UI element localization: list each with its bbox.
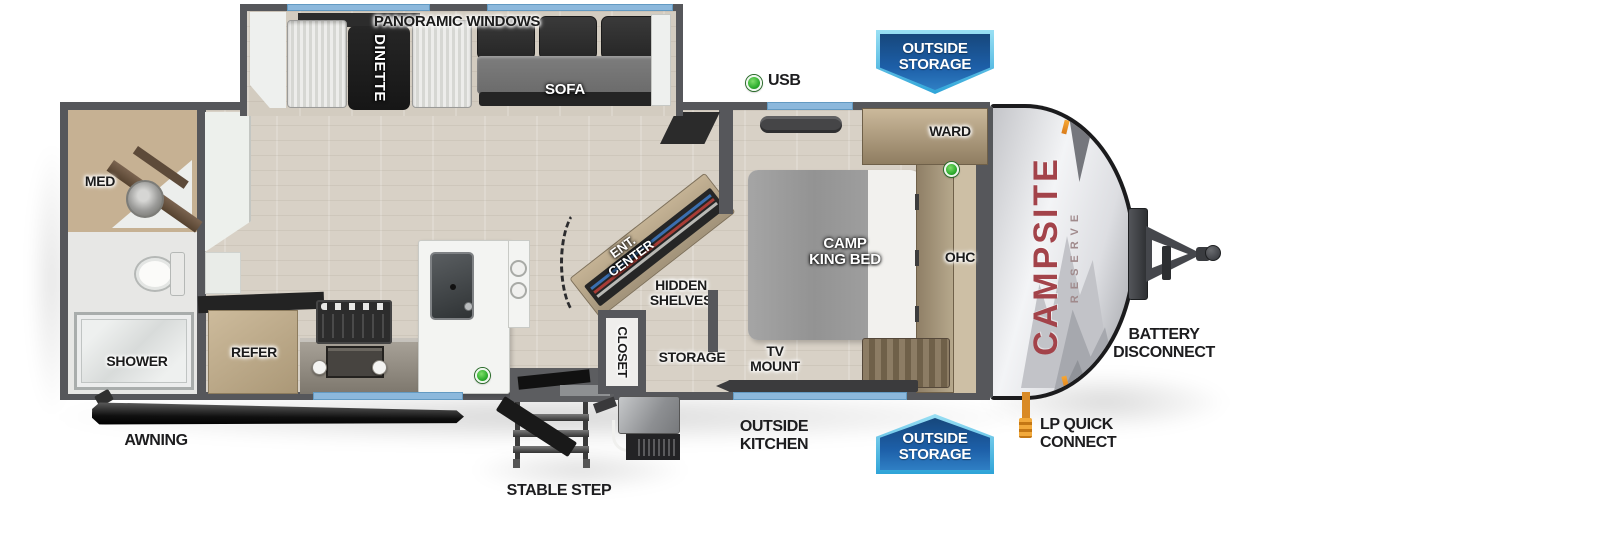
dinette-bench (412, 20, 472, 108)
sofa-label: SOFA (525, 82, 605, 98)
outside-storage-badge-top: OUTSIDE STORAGE (876, 30, 994, 94)
panoramic-windows-label: PANORAMIC WINDOWS (352, 14, 562, 30)
storage-label: STORAGE (650, 350, 734, 365)
refrigerator: REFER (208, 310, 298, 394)
bedroom-top-window (767, 102, 853, 110)
toilet-tank (170, 252, 185, 296)
shower-label: SHOWER (97, 354, 177, 369)
usb-legend-dot (746, 75, 762, 91)
stable-step-label: STABLE STEP (503, 482, 615, 500)
med-label: MED (74, 174, 126, 189)
hitch-coupler-knob (1205, 245, 1221, 261)
hinge (915, 306, 919, 322)
drawer-knob (372, 360, 387, 375)
ac-vent (760, 116, 842, 133)
brand-primary: CAMPSITE (1027, 156, 1066, 356)
tv-mount-bar (728, 380, 918, 392)
outside-kitchen-griddle (618, 396, 680, 434)
step-foot (583, 459, 590, 468)
hinge (915, 250, 919, 266)
trailer-main-body: MED SHOWER REFER (60, 102, 990, 400)
tv-mount-label: TV MOUNT (740, 344, 810, 374)
bedroom-bottom-window (733, 392, 907, 400)
step-foot (513, 459, 520, 468)
usb-indicator-dot (475, 368, 490, 383)
sofa-armrest (651, 14, 671, 106)
cooktop-grate (322, 314, 386, 338)
hinge (915, 194, 919, 210)
floorplan-canvas: MED SHOWER REFER (0, 0, 1600, 551)
dinette-bench (287, 20, 347, 108)
lp-quick-connect-label: LP QUICK CONNECT (1024, 416, 1134, 452)
ward-label: WARD (912, 124, 988, 139)
kitchen-bottom-window (313, 392, 463, 400)
dinette-label: DINETTE (371, 34, 387, 102)
lower-cabinet (205, 252, 241, 294)
stove-burner-bowl (510, 282, 527, 299)
battery-disconnect-label: BATTERY DISCONNECT (1108, 326, 1220, 362)
sink-drain (450, 284, 456, 290)
brand-logo: CAMPSITE RESERVE (990, 108, 1127, 400)
outside-kitchen-vents (638, 439, 678, 456)
step-tread (513, 446, 589, 453)
hitch-bumper (1128, 208, 1148, 300)
usb-legend-label: USB (768, 72, 814, 90)
camp-king-bed: CAMP KING BED (748, 170, 920, 340)
faucet (464, 302, 473, 311)
tongue-jack (1162, 246, 1171, 280)
shower-pan (74, 312, 194, 390)
ohc-label: OHC (930, 250, 990, 265)
outside-kitchen-label: OUTSIDE KITCHEN (714, 418, 834, 454)
usb-indicator-dot (944, 162, 959, 177)
awning-label: AWNING (106, 432, 206, 450)
outside-storage-bottom-label: OUTSIDE STORAGE (876, 431, 994, 463)
overhead-cabinet-face (954, 163, 976, 393)
refer-label: REFER (223, 345, 285, 360)
brand-secondary: RESERVE (1069, 156, 1081, 356)
bed-label: CAMP KING BED (770, 236, 920, 268)
wall-stub-storage (708, 290, 718, 352)
dinette-table: DINETTE (348, 26, 410, 110)
stable-step (505, 396, 605, 474)
closet: CLOSET (598, 310, 646, 394)
drawer-knob (312, 360, 327, 375)
stove-burner-bowl (510, 260, 527, 277)
closet-label: CLOSET (615, 327, 629, 378)
cooktop-knobs (321, 303, 387, 310)
bedroom-wall (719, 110, 733, 214)
slideout-window-left (287, 4, 430, 11)
outside-kitchen-unit (610, 394, 690, 464)
cooktop (316, 300, 392, 344)
slideout-window-right (487, 4, 673, 11)
outside-storage-top-label: OUTSIDE STORAGE (876, 41, 994, 73)
bathroom-sink (126, 180, 164, 218)
outside-kitchen-base (626, 434, 680, 460)
